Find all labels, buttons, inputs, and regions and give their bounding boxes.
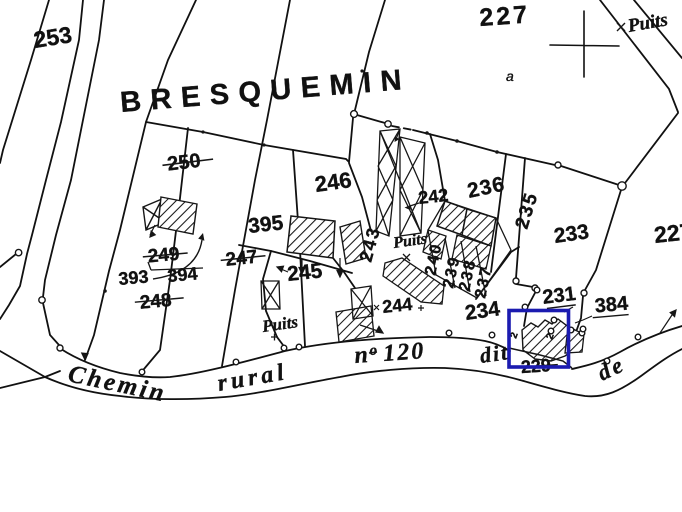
svg-text:384: 384 [594, 293, 630, 318]
svg-text:246: 246 [313, 167, 353, 197]
svg-text:a: a [506, 68, 514, 84]
svg-text:dit: dit [478, 339, 510, 368]
svg-text:233: 233 [552, 220, 590, 248]
svg-text:395: 395 [247, 211, 285, 238]
svg-text:393: 393 [118, 266, 150, 289]
svg-text:234: 234 [463, 297, 501, 325]
svg-text:de: de [594, 351, 630, 385]
svg-text:253: 253 [32, 21, 74, 53]
svg-text:rural: rural [216, 359, 290, 397]
svg-text:235: 235 [512, 189, 543, 231]
svg-text:Chemin: Chemin [66, 360, 169, 407]
svg-text:no 120: no 120 [354, 338, 427, 369]
svg-text:242: 242 [417, 185, 449, 208]
svg-text:394: 394 [167, 263, 199, 286]
svg-text:244: 244 [381, 294, 413, 317]
svg-text:227: 227 [653, 218, 682, 248]
svg-text:Puits: Puits [625, 9, 669, 37]
svg-text:245: 245 [286, 259, 324, 286]
svg-text:Puits: Puits [260, 312, 300, 336]
svg-text:227: 227 [478, 1, 531, 32]
svg-text:Puits: Puits [391, 230, 428, 252]
